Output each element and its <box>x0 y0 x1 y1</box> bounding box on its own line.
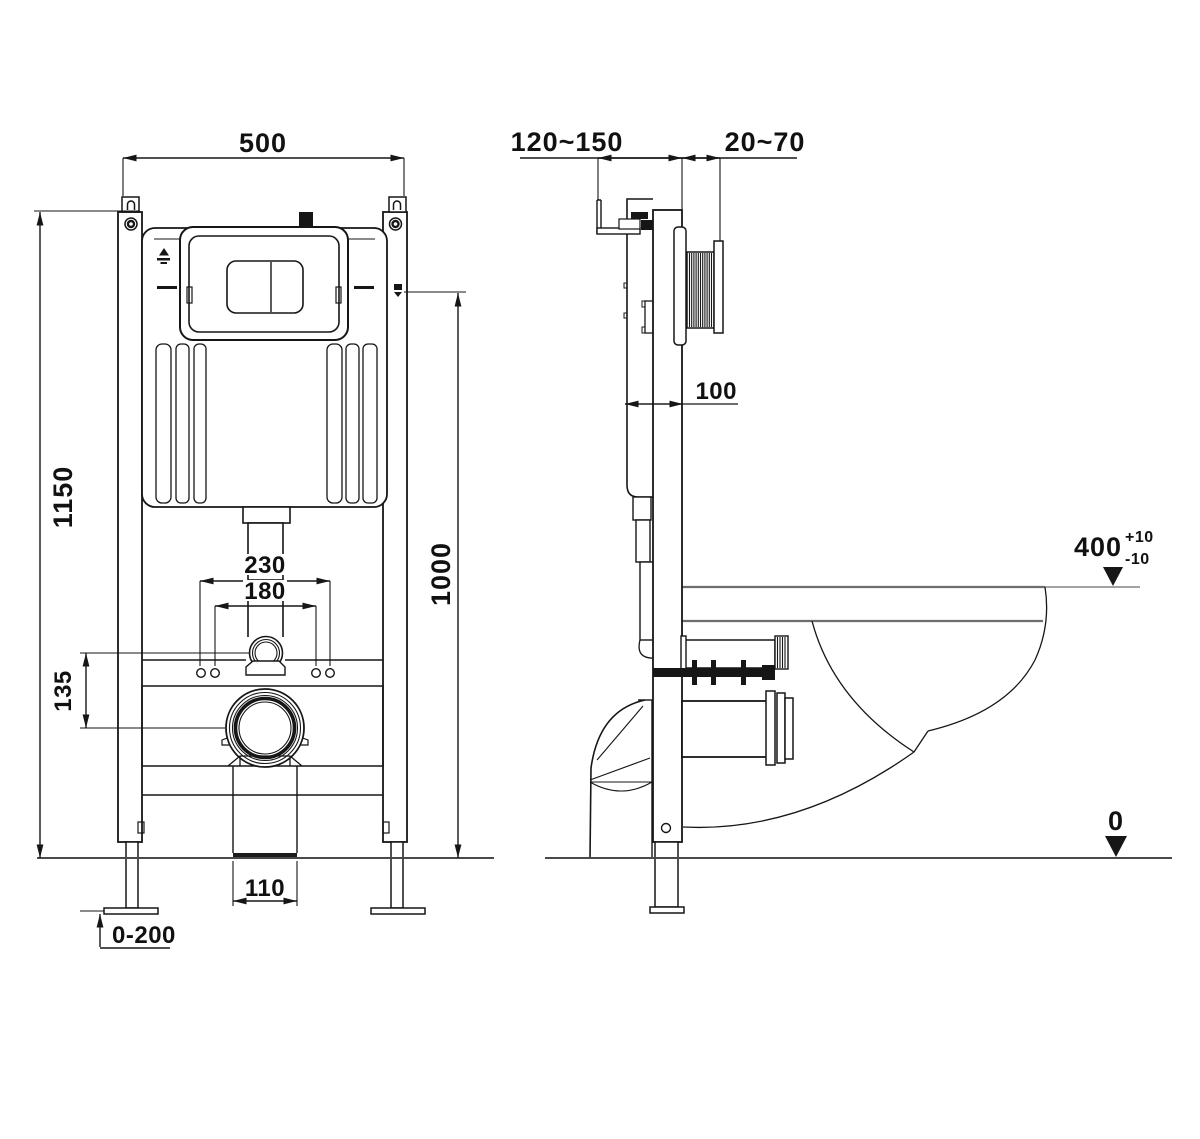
level-marker-400: 400 +10 -10 <box>1074 529 1154 586</box>
dim-label-fixing-inner: 180 <box>244 578 286 605</box>
dim-label-supply-height: 1000 <box>426 542 456 606</box>
bowl-front-curve <box>928 587 1047 731</box>
protection-sleeve <box>674 227 723 345</box>
left-foot-leg <box>126 842 138 908</box>
level-dash <box>354 286 374 289</box>
bracket-bolt <box>631 212 648 219</box>
flush-pipe-stub <box>243 507 290 523</box>
rail-hole <box>662 824 671 833</box>
left-rail-tab <box>122 197 139 212</box>
dim-offset-135: 135 <box>50 653 249 728</box>
dim-width-500: 500 <box>123 128 404 196</box>
dim-label-drain-outlet: 110 <box>245 875 285 902</box>
dim-supply-1000: 1000 <box>404 292 466 858</box>
dim-label-foot-adjust: 0-200 <box>112 922 176 949</box>
dim-label-tol-plus: +10 <box>1125 529 1154 546</box>
sleeve-flange-outer <box>714 241 723 333</box>
flush-bend-mount <box>246 661 285 675</box>
drain-socket <box>226 689 304 767</box>
dim-label-width: 500 <box>239 128 287 158</box>
dim-label-fixing-outer: 230 <box>244 552 286 579</box>
level-dash <box>157 286 177 289</box>
level-triangle-icon <box>1105 836 1127 857</box>
level-marker-0: 0 <box>1105 806 1127 857</box>
side-view: 120~150 20~70 100 400 +10 -10 0 <box>511 127 1172 913</box>
drain-elbow <box>590 700 653 858</box>
left-foot-plate <box>104 908 158 914</box>
bowl-bottom-curve <box>683 752 914 827</box>
bracket-clamp <box>619 219 640 229</box>
dim-foot-0-200: 0-200 <box>80 911 176 949</box>
right-rail-tab <box>389 197 406 212</box>
dim-label-wall-gap: 20~70 <box>725 127 806 157</box>
dim-label-tol-minus: -10 <box>1125 551 1150 568</box>
sleeve-flange-inner <box>674 227 686 345</box>
toilet-frame-installation-drawing: 500 1150 1000 230 180 135 <box>0 0 1200 1139</box>
rod-nut <box>762 665 775 680</box>
left-rail <box>118 212 142 842</box>
level-triangle-icon <box>1103 567 1123 586</box>
dim-label-flush-drain: 135 <box>50 670 77 712</box>
waste-connector <box>682 691 793 765</box>
frame-foot-side <box>650 842 684 913</box>
flush-access-window <box>180 227 348 340</box>
concealed-cistern <box>142 212 402 507</box>
right-foot-plate <box>371 908 425 914</box>
dim-label-height: 1150 <box>48 466 78 529</box>
dim-label-depth-range: 120~150 <box>511 127 624 157</box>
dim-label-bowl-height: 400 <box>1074 532 1122 562</box>
dim-drain-110: 110 <box>233 861 297 906</box>
flush-pipe-side <box>633 497 651 520</box>
cistern-side <box>624 199 657 658</box>
drain-stub <box>233 766 297 853</box>
technical-drawing-page: 500 1150 1000 230 180 135 <box>0 0 1200 1139</box>
dim-label-floor-level: 0 <box>1108 806 1124 836</box>
bowl-inner-curve <box>812 621 914 752</box>
right-foot-leg <box>391 842 403 908</box>
water-inlet-connector <box>299 212 313 228</box>
dim-label-cistern-depth: 100 <box>695 378 737 405</box>
front-view: 500 1150 1000 230 180 135 <box>34 128 494 949</box>
